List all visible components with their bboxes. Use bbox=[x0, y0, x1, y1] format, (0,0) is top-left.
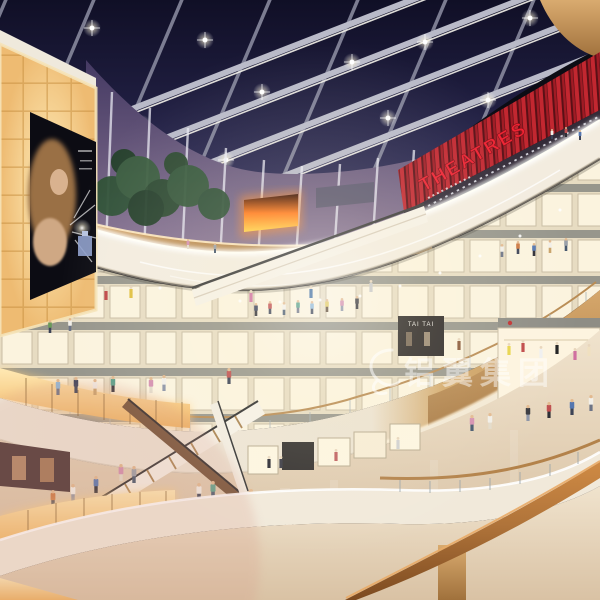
ceiling-spotlight bbox=[416, 33, 434, 51]
billboard-model-shoulder bbox=[33, 218, 67, 266]
billboard-model-face bbox=[50, 169, 68, 195]
ceiling-spotlight bbox=[196, 31, 214, 49]
scene-canvas: THEATRES bbox=[0, 0, 600, 600]
ceiling-spotlight bbox=[83, 19, 101, 37]
ceiling-spotlight bbox=[521, 9, 539, 27]
mannequin bbox=[587, 344, 590, 356]
watermark-text: 铝翼集团 bbox=[404, 356, 556, 392]
mall-atrium-rendering: THEATRES bbox=[0, 0, 600, 600]
